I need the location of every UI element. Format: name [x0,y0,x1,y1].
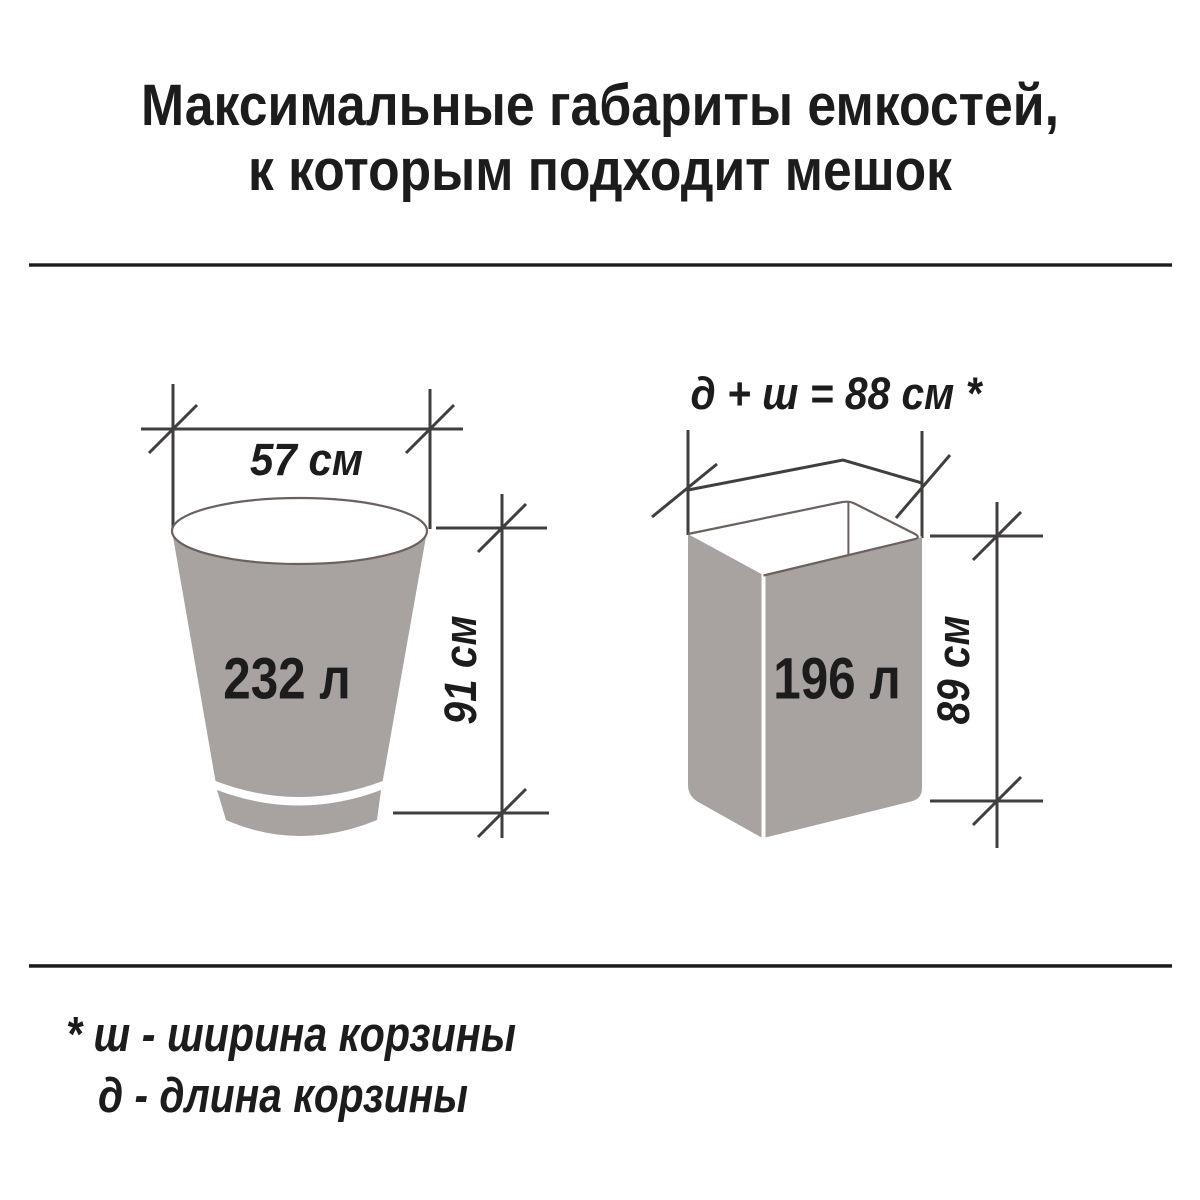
svg-text:к которым подходит мешок: к которым подходит мешок [248,138,953,203]
svg-text:* ш - ширина корзины: * ш - ширина корзины [66,1008,516,1062]
svg-text:91 см: 91 см [435,616,486,725]
svg-text:232 л: 232 л [223,647,351,712]
svg-text:57 см: 57 см [250,434,363,485]
svg-text:196 л: 196 л [773,647,901,712]
svg-text:д + ш = 88 см *: д + ш = 88 см * [691,368,984,419]
svg-text:Максимальные габариты емкостей: Максимальные габариты емкостей, [141,73,1059,138]
svg-text:89 см: 89 см [928,616,979,725]
svg-text:д - длина корзины: д - длина корзины [98,1069,468,1123]
